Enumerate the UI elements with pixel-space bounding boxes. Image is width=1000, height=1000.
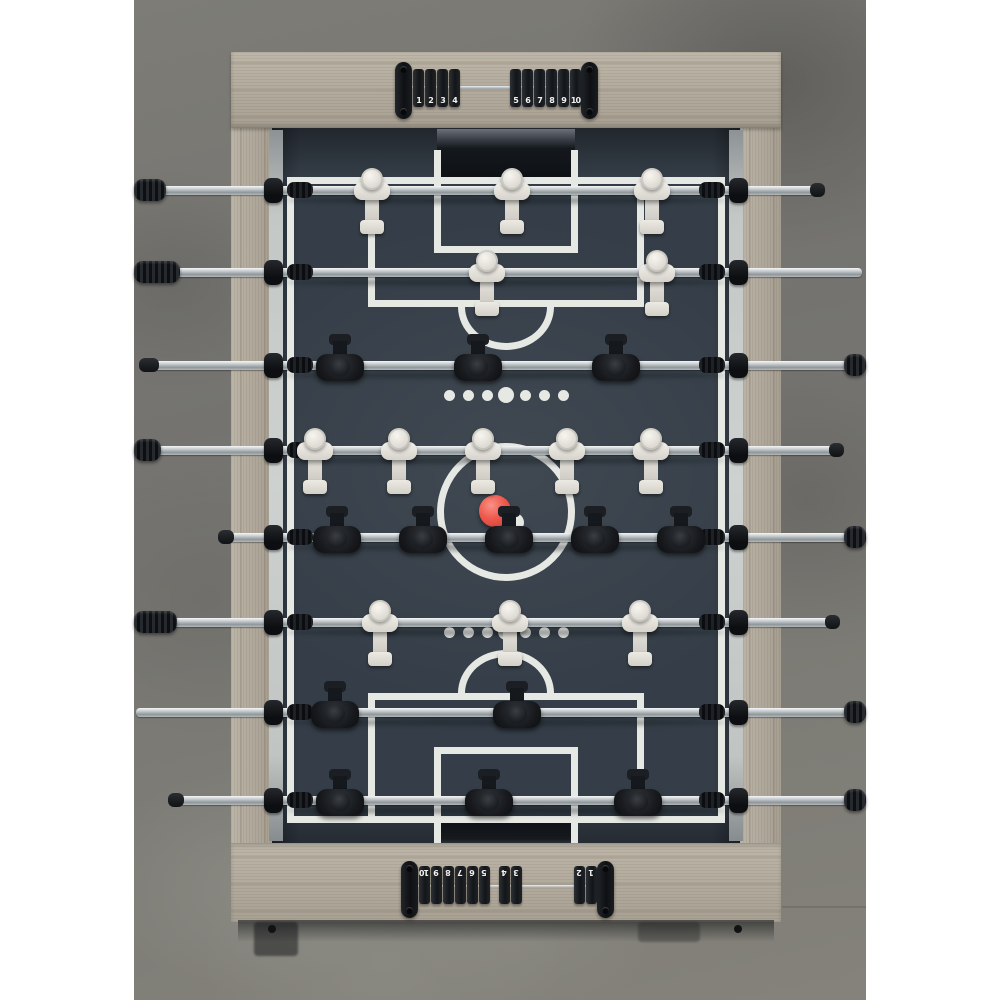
- score-bead-number: 1: [586, 868, 597, 877]
- score-bead-number: 1: [413, 96, 424, 105]
- rod-bushing: [264, 788, 283, 813]
- score-bead: 8: [443, 866, 454, 904]
- score-bead-number: 8: [443, 868, 454, 877]
- rod-end-cap: [168, 793, 184, 807]
- player-white: [377, 428, 421, 496]
- pitch-dot: [558, 390, 569, 401]
- score-bead: 4: [449, 69, 460, 107]
- rod-handle-grip: [844, 354, 866, 376]
- rod-bumper: [287, 264, 313, 280]
- counter-post: [401, 861, 418, 918]
- rod-end-cap: [810, 183, 825, 197]
- player-black: [314, 769, 366, 831]
- player-black: [491, 681, 543, 743]
- score-bead-number: 8: [546, 96, 557, 105]
- rod-bushing: [729, 438, 748, 463]
- rod-bumper: [287, 529, 313, 545]
- rod-handle-grip: [844, 701, 866, 723]
- player-black: [314, 334, 366, 396]
- table-frame-top-rail: [231, 52, 781, 128]
- side-wall-left: [269, 130, 283, 841]
- score-bead: 2: [574, 866, 585, 904]
- score-bead: 6: [522, 69, 533, 107]
- player-white: [635, 250, 679, 318]
- rod-end-cap: [829, 443, 844, 457]
- score-bead: 2: [425, 69, 436, 107]
- score-bead: 9: [558, 69, 569, 107]
- player-white: [629, 428, 673, 496]
- score-bead-number: 7: [455, 868, 466, 877]
- score-bead-number: 2: [425, 96, 436, 105]
- rod-bushing: [729, 788, 748, 813]
- player-white: [618, 600, 662, 668]
- player-black: [569, 506, 621, 568]
- score-bead-number: 9: [558, 96, 569, 105]
- rod-handle-grip: [844, 789, 866, 811]
- rod-bushing: [264, 353, 283, 378]
- score-bead-number: 4: [449, 96, 460, 105]
- score-bead-number: 5: [479, 868, 490, 877]
- side-wall-right: [729, 130, 743, 841]
- score-bead: 7: [455, 866, 466, 904]
- player-white: [358, 600, 402, 668]
- rod-bumper: [699, 442, 725, 458]
- score-bead-number: 9: [431, 868, 442, 877]
- score-bead-number: 5: [510, 96, 521, 105]
- player-black: [397, 506, 449, 568]
- rod-bushing: [729, 260, 748, 285]
- score-bead-number: 10: [419, 868, 430, 877]
- score-bead-number: 6: [467, 868, 478, 877]
- rod-bushing: [729, 700, 748, 725]
- rod-handle-grip: [134, 179, 166, 201]
- score-bead-number: 6: [522, 96, 533, 105]
- rod-bushing: [264, 260, 283, 285]
- corner-bracket-screw: [734, 925, 742, 933]
- rod-bushing: [264, 178, 283, 203]
- rod-bumper: [699, 792, 725, 808]
- rod-bushing: [264, 438, 283, 463]
- score-beads-10-5: 1098765: [419, 866, 491, 904]
- player-white: [490, 168, 534, 236]
- rod-bumper: [699, 264, 725, 280]
- player-white: [293, 428, 337, 496]
- rod-bumper: [287, 614, 313, 630]
- player-black: [655, 506, 707, 568]
- rod-bumper: [287, 182, 313, 198]
- rod-bushing: [264, 610, 283, 635]
- rod-handle-grip: [844, 526, 866, 548]
- rod-bushing: [729, 610, 748, 635]
- rod-end-cap: [139, 358, 159, 372]
- rod-bushing: [264, 525, 283, 550]
- player-white: [461, 428, 505, 496]
- rod-bumper: [699, 704, 725, 720]
- player-white: [350, 168, 394, 236]
- player-white: [545, 428, 589, 496]
- score-bead: 4: [499, 866, 510, 904]
- rod-handle-grip: [134, 439, 161, 461]
- score-bead: 5: [510, 69, 521, 107]
- score-bead-number: 2: [574, 868, 585, 877]
- score-beads-4-3: 43: [499, 866, 523, 904]
- rod-bumper: [287, 357, 313, 373]
- rod-bushing: [264, 700, 283, 725]
- rod-handle-grip: [134, 611, 177, 633]
- foosball-table-photo: 1234 5678910 1098765 43 21: [0, 0, 1000, 1000]
- floor-seam: [782, 906, 866, 908]
- player-black: [590, 334, 642, 396]
- score-bead-number: 3: [437, 96, 448, 105]
- rod-bumper: [699, 182, 725, 198]
- score-beads-2-1: 21: [574, 866, 598, 904]
- score-bead-number: 7: [534, 96, 545, 105]
- score-beads-1-4: 1234: [413, 69, 461, 107]
- player-black: [311, 506, 363, 568]
- rod-end-cap: [218, 530, 234, 544]
- score-bead: 6: [467, 866, 478, 904]
- score-bead: 9: [431, 866, 442, 904]
- player-black: [483, 506, 535, 568]
- player-black: [612, 769, 664, 831]
- table-leg-shadow: [254, 922, 298, 956]
- score-bead: 5: [479, 866, 490, 904]
- score-bead: 8: [546, 69, 557, 107]
- score-bead-number: 10: [570, 96, 581, 105]
- score-bead: 1: [413, 69, 424, 107]
- player-white: [630, 168, 674, 236]
- rod-bushing: [729, 353, 748, 378]
- pitch-dot: [539, 390, 550, 401]
- player-black: [452, 334, 504, 396]
- rod-handle-grip: [134, 261, 180, 283]
- score-bead: 1: [586, 866, 597, 904]
- score-bead: 7: [534, 69, 545, 107]
- player-black: [309, 681, 361, 743]
- score-beads-5-10: 5678910: [510, 69, 582, 107]
- score-bead: 10: [419, 866, 430, 904]
- rod-bushing: [729, 525, 748, 550]
- score-bead: 10: [570, 69, 581, 107]
- table-leg-shadow: [638, 922, 700, 942]
- counter-post: [581, 62, 598, 119]
- score-bead: 3: [511, 866, 522, 904]
- rod-bumper: [699, 357, 725, 373]
- score-bead-number: 4: [499, 868, 510, 877]
- rod-bumper: [699, 614, 725, 630]
- pitch-dot: [520, 390, 531, 401]
- player-black: [463, 769, 515, 831]
- player-white: [465, 250, 509, 318]
- counter-post: [597, 861, 614, 918]
- player-white: [488, 600, 532, 668]
- rod-bushing: [729, 178, 748, 203]
- score-bead: 3: [437, 69, 448, 107]
- score-bead-number: 3: [511, 868, 522, 877]
- rod-bar: [142, 361, 866, 370]
- rod-end-cap: [825, 615, 840, 629]
- corner-bracket-screw: [268, 925, 276, 933]
- rod-bumper: [287, 792, 313, 808]
- counter-post: [395, 62, 412, 119]
